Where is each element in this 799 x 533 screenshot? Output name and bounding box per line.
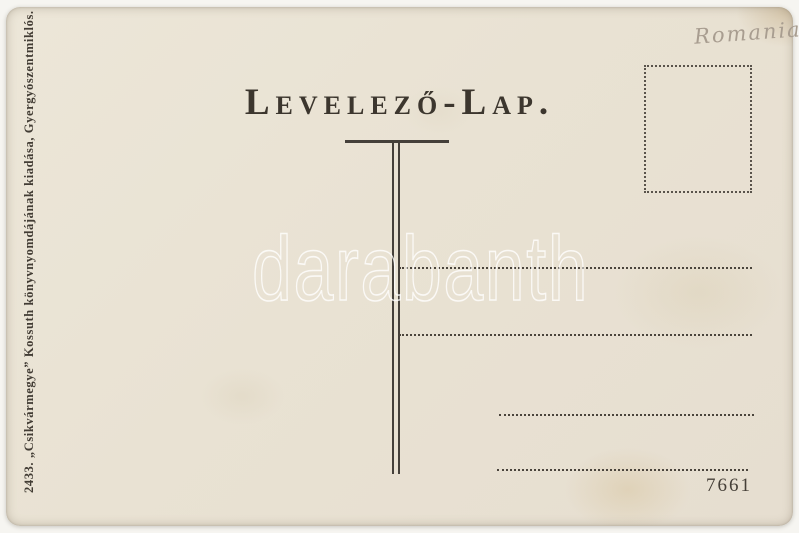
address-line-3 bbox=[499, 414, 754, 416]
postcard-scan: 2433. „Csikvármegye” Kossuth könyvnyomdá… bbox=[0, 0, 799, 533]
handwritten-country-note: Romania bbox=[693, 17, 799, 48]
serial-number: 7661 bbox=[706, 475, 752, 497]
divider-vertical-line bbox=[392, 143, 400, 474]
address-line-1 bbox=[399, 267, 752, 269]
postcard: 2433. „Csikvármegye” Kossuth könyvnyomdá… bbox=[6, 7, 793, 526]
address-line-2 bbox=[399, 334, 752, 336]
stamp-box bbox=[644, 65, 752, 193]
auction-watermark: darabanth bbox=[252, 217, 589, 322]
address-line-4 bbox=[497, 469, 748, 471]
